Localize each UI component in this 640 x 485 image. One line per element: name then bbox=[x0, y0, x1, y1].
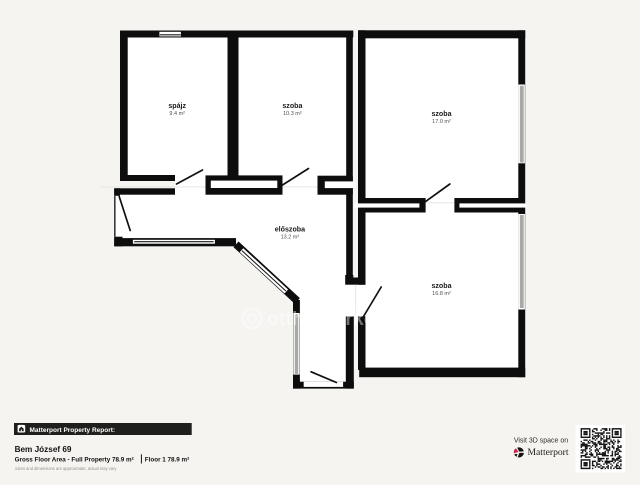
svg-text:10.3 m²: 10.3 m² bbox=[283, 111, 302, 117]
svg-text:szoba: szoba bbox=[282, 102, 302, 110]
svg-text:otthonterkep: otthonterkep bbox=[267, 309, 387, 330]
svg-text:16.8 m²: 16.8 m² bbox=[432, 291, 451, 297]
svg-text:Floor 1 78.9 m²: Floor 1 78.9 m² bbox=[145, 456, 189, 463]
svg-text:szoba: szoba bbox=[431, 282, 451, 290]
svg-text:Bem József 69: Bem József 69 bbox=[15, 445, 72, 454]
svg-text:szoba: szoba bbox=[431, 110, 451, 118]
svg-text:előszoba: előszoba bbox=[275, 226, 305, 234]
svg-text:spájz: spájz bbox=[168, 102, 186, 110]
svg-text:Sizes and dimensions are appro: Sizes and dimensions are approximate, ac… bbox=[15, 466, 117, 471]
svg-text:13.2 m²: 13.2 m² bbox=[281, 235, 300, 241]
svg-text:Gross Floor Area - Full Proper: Gross Floor Area - Full Property 78.9 m² bbox=[15, 456, 134, 463]
svg-text:Visit 3D space on: Visit 3D space on bbox=[514, 437, 568, 444]
svg-text:17.0 m²: 17.0 m² bbox=[432, 119, 451, 125]
svg-text:9.4 m²: 9.4 m² bbox=[169, 111, 185, 117]
svg-text:Matterport Property Report:: Matterport Property Report: bbox=[30, 427, 116, 434]
svg-text:Matterport: Matterport bbox=[528, 447, 569, 458]
